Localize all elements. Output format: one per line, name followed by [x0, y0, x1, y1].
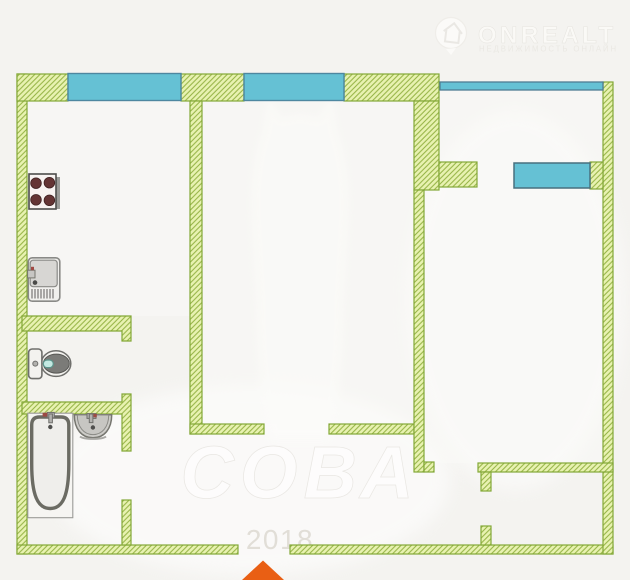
svg-text:СОВА: СОВА — [180, 431, 419, 514]
svg-text:НЕДВИЖИМОСТЬ ОНЛАЙН: НЕДВИЖИМОСТЬ ОНЛАЙН — [479, 45, 618, 54]
